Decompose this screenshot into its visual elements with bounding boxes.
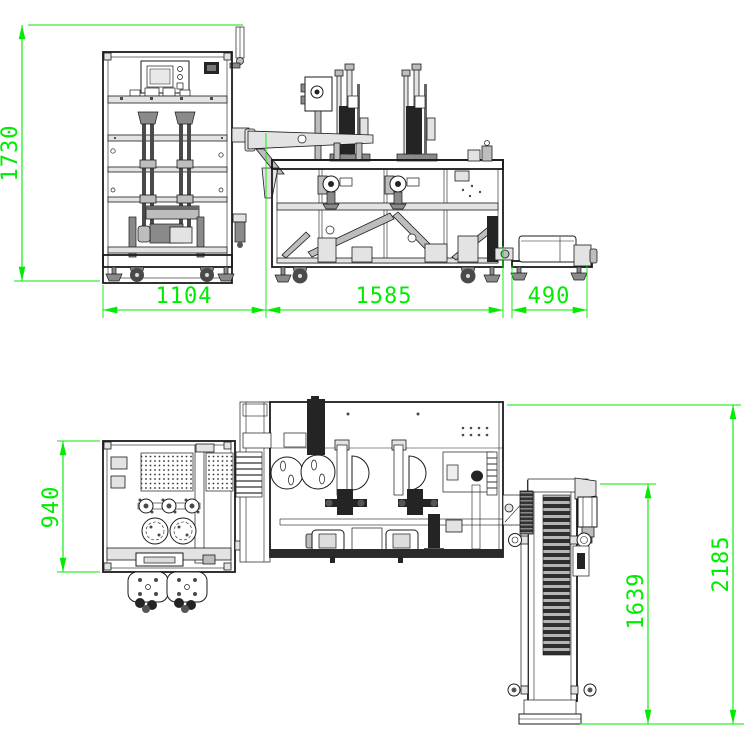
conveyor-belt <box>543 495 570 655</box>
main-machine-plan <box>236 396 503 563</box>
plan-lower-mechanisms <box>280 485 503 553</box>
control-box <box>301 77 332 160</box>
conveyor-motor <box>578 497 597 527</box>
air-filter-unit <box>233 214 246 222</box>
plan-bottom-rail <box>270 549 503 557</box>
infeed-arm <box>245 129 373 198</box>
outfeed-motor <box>574 245 591 266</box>
gripper-stations <box>139 499 200 514</box>
reel-discs <box>142 518 196 544</box>
feeder-casters <box>106 267 234 282</box>
perforated-plate-left <box>141 453 193 491</box>
perforated-plate-right <box>206 453 233 491</box>
fixture-plate-right <box>167 572 207 613</box>
dim-overall-depth: 2185 <box>709 536 734 593</box>
side-roller <box>520 491 533 534</box>
dim-main-width: 1585 <box>356 284 413 309</box>
dim-conveyor-length: 1639 <box>624 573 649 630</box>
top-plan-view: 940 1639 2185 <box>39 396 744 724</box>
dim-overall-height: 1730 <box>0 125 23 182</box>
conveyor-plan <box>503 478 597 724</box>
cad-drawing-canvas: 1730 1104 1585 490 <box>0 0 750 750</box>
fixture-plate-left <box>128 572 168 613</box>
feeder-machine-plan <box>103 441 248 613</box>
main-machine-front <box>245 64 503 284</box>
conveyor-head <box>575 478 596 499</box>
transfer-bridge <box>236 452 262 497</box>
front-elevation-view: 1730 1104 1585 490 <box>0 25 597 318</box>
pick-place-tower-2 <box>397 64 437 161</box>
main-casters <box>275 267 500 284</box>
outfeed-body <box>519 236 576 262</box>
dim-feeder-depth: 940 <box>39 486 64 529</box>
dim-feeder-width: 1104 <box>156 284 213 309</box>
right-panel <box>443 452 497 495</box>
feeder-machine-front <box>103 27 249 283</box>
machine-drawing: 1730 1104 1585 490 <box>0 0 750 750</box>
top-column <box>307 399 325 455</box>
dim-outfeed-width: 490 <box>528 284 571 309</box>
lower-mechanisms <box>282 212 498 262</box>
outfeed-unit-front <box>495 236 597 280</box>
